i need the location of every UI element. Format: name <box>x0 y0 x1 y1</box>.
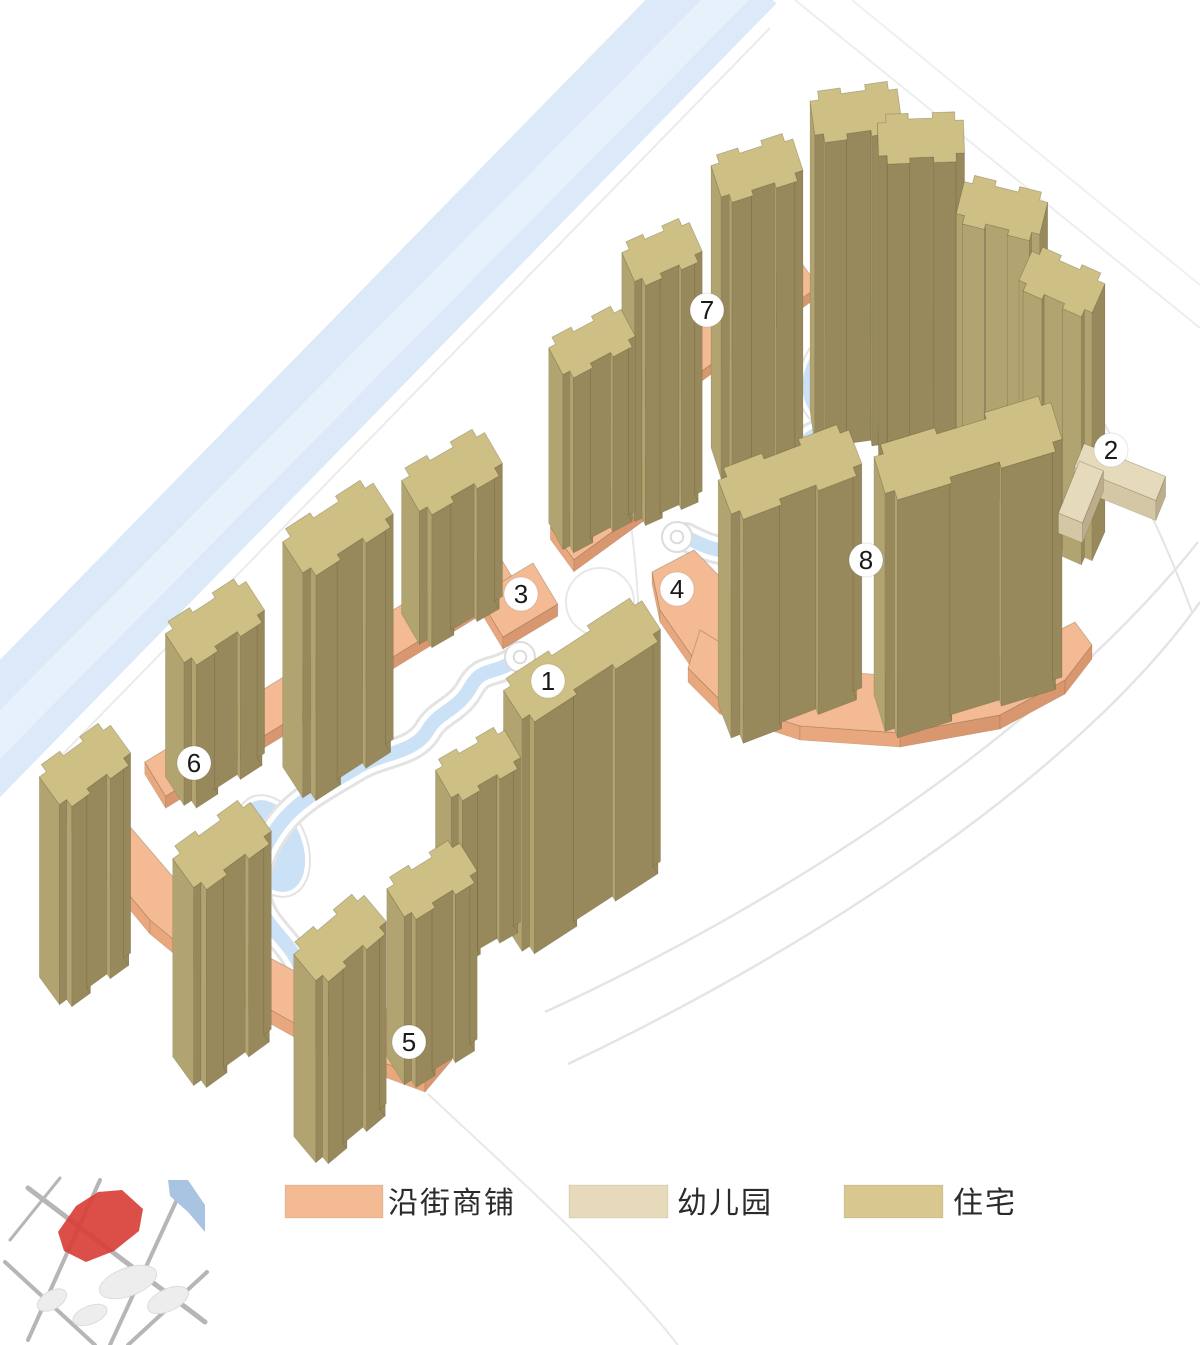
residential-tower <box>294 894 387 1164</box>
legend: 沿街商铺 幼儿园 住宅 <box>285 1185 1017 1220</box>
marker-number: 6 <box>187 748 201 778</box>
location-inset-map <box>5 1178 207 1345</box>
masterplan-figure: 12345678 沿街商铺 幼儿园 住宅 <box>0 0 1200 1345</box>
inset-building <box>143 1281 192 1320</box>
residential-tower <box>549 306 636 553</box>
marker-3: 3 <box>504 577 538 611</box>
marker-number: 2 <box>1104 435 1118 465</box>
residential-tower <box>283 480 394 800</box>
marker-number: 8 <box>859 545 873 575</box>
marker-7: 7 <box>690 293 724 327</box>
legend-swatch-street-shops <box>285 1185 383 1218</box>
marker-4: 4 <box>660 572 694 606</box>
buildings <box>39 81 1165 1163</box>
marker-8: 8 <box>849 543 883 577</box>
inset-site-highlight <box>58 1190 143 1262</box>
legend-label-kindergarten: 幼儿园 <box>677 1187 773 1220</box>
marker-number: 4 <box>670 574 684 604</box>
marker-number: 1 <box>541 666 555 696</box>
residential-tower <box>402 429 503 648</box>
residential-tower <box>173 800 272 1087</box>
marker-2: 2 <box>1094 433 1128 467</box>
legend-swatch-residential <box>844 1185 943 1218</box>
marker-number: 3 <box>514 579 528 609</box>
legend-label-residential: 住宅 <box>953 1187 1017 1220</box>
residential-tower <box>877 112 964 464</box>
legend-swatch-kindergarten <box>569 1185 668 1218</box>
masterplan-canvas: 12345678 沿街商铺 幼儿园 住宅 <box>0 0 1200 1345</box>
marker-6: 6 <box>177 746 211 780</box>
residential-tower <box>711 134 803 485</box>
legend-label-street-shops: 沿街商铺 <box>388 1187 516 1220</box>
residential-tower <box>39 723 130 1006</box>
marker-1: 1 <box>531 664 565 698</box>
residential-tower <box>718 425 862 744</box>
residential-tower <box>874 396 1062 738</box>
marker-number: 5 <box>402 1027 416 1057</box>
marker-5: 5 <box>392 1025 426 1059</box>
marker-number: 7 <box>700 295 714 325</box>
